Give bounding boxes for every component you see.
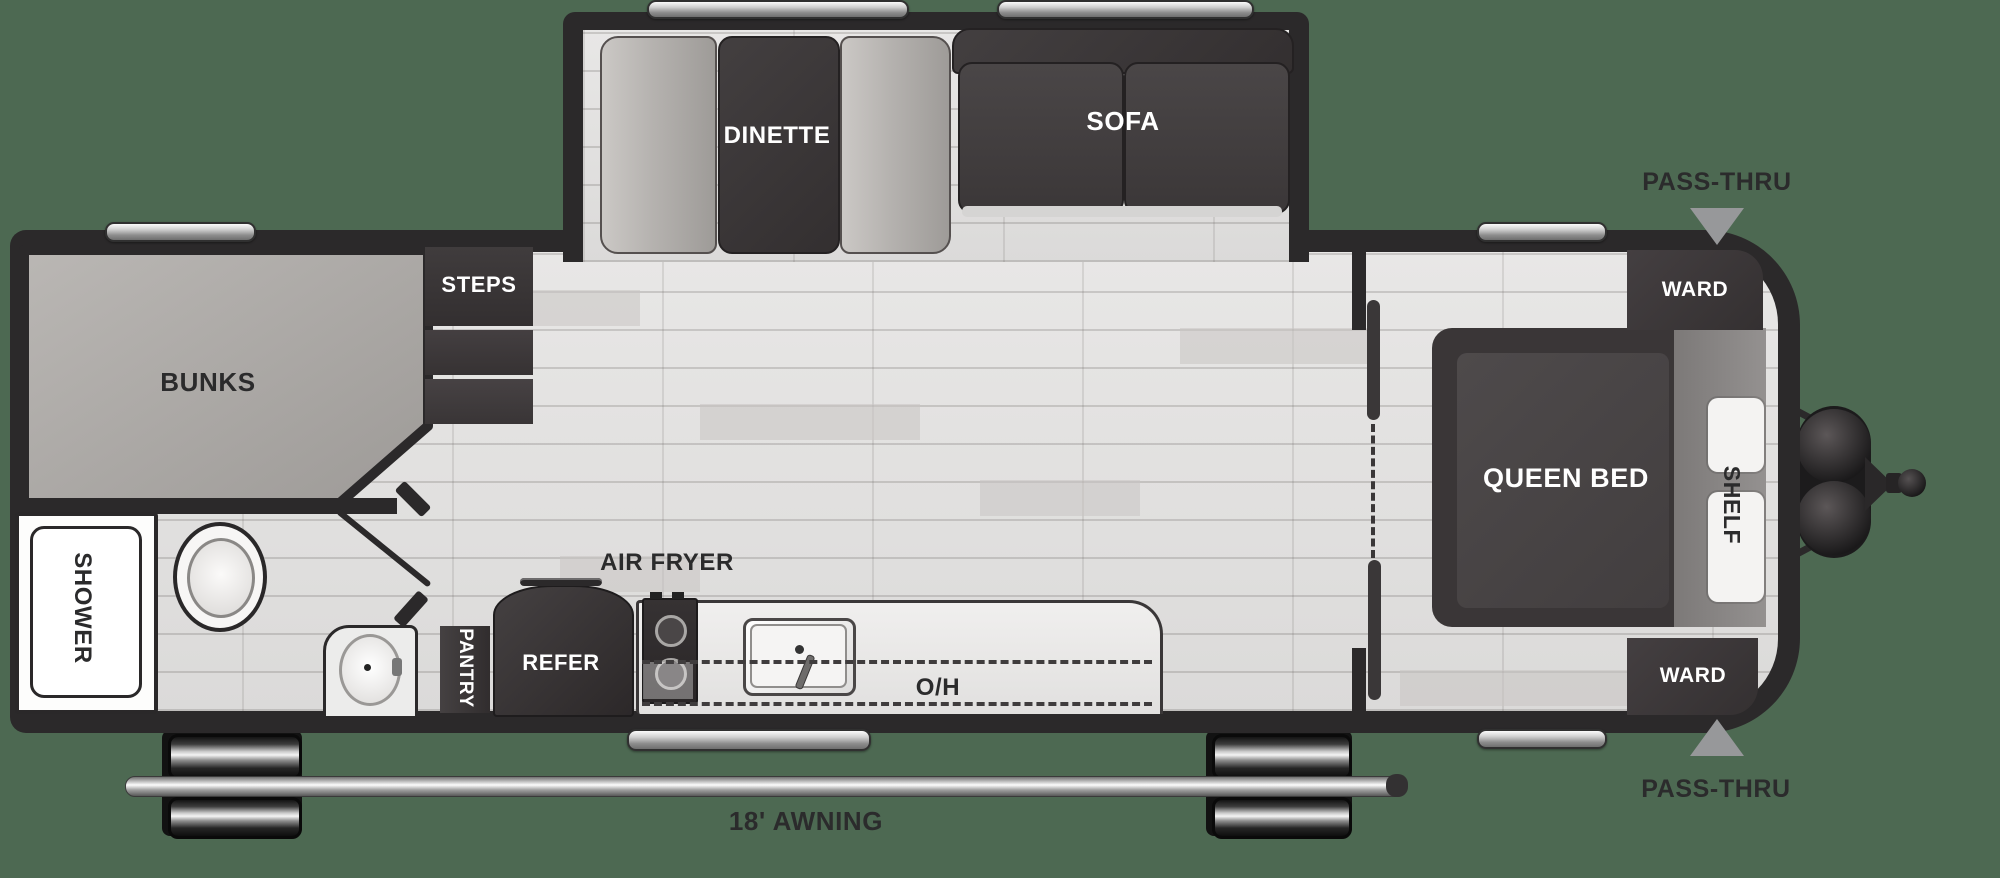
shower-label: SHOWER: [67, 508, 97, 708]
sofa-label: SOFA: [1043, 106, 1203, 136]
pass-thru-bottom-arrow-icon: [1690, 719, 1744, 756]
sofa-cushion: [1124, 62, 1290, 214]
burner-icon: [655, 615, 687, 647]
awning-label: 18' AWNING: [706, 806, 906, 836]
ward-top-label: WARD: [1635, 277, 1755, 303]
sofa-front-edge: [962, 206, 1282, 217]
toilet-bowl: [187, 538, 255, 618]
awning-rail-endcap: [1386, 774, 1408, 797]
ward-bottom-label: WARD: [1633, 663, 1753, 689]
sofa-cushion: [958, 62, 1124, 214]
refer-label: REFER: [501, 650, 621, 676]
tire-icon: [1212, 734, 1352, 780]
air-fryer-label: AIR FRYER: [577, 549, 757, 577]
partition-wall-bottom: [1352, 648, 1366, 711]
window-bedroom-top: [1477, 222, 1607, 242]
overhead-cabinet-dash: [642, 702, 1152, 706]
sliding-door-track-dash: [1371, 424, 1375, 558]
sliding-door-panel: [1368, 560, 1381, 700]
overhead-label: O/H: [878, 674, 998, 702]
tire-icon: [1212, 797, 1352, 839]
floor-plank-patch: [980, 480, 1140, 516]
propane-tank-icon: [1797, 409, 1871, 483]
pass-thru-top-label: PASS-THRU: [1627, 168, 1807, 196]
awning-rail: [125, 776, 1406, 797]
floor-plank-patch: [700, 404, 920, 440]
dinette-label: DINETTE: [697, 122, 857, 150]
kitchen-faucet-icon: [795, 645, 804, 654]
bath-faucet-icon: [392, 658, 402, 676]
entry-step-bar: [627, 729, 871, 751]
overhead-cabinet-dash: [642, 660, 1152, 664]
sliding-door-panel: [1367, 300, 1380, 420]
pass-thru-top-arrow-icon: [1690, 208, 1744, 245]
window-slideout-right: [997, 0, 1254, 19]
range-knob: [650, 592, 662, 599]
shelf-label: SHELF: [1719, 425, 1745, 585]
tire-icon: [168, 734, 302, 780]
hitch-ball-icon: [1898, 469, 1926, 497]
floorplan-canvas: DINETTE SOFA BUNKS STEPS SHOWER PANT: [0, 0, 2000, 878]
floor-plank-patch: [1180, 328, 1380, 364]
bunks-label: BUNKS: [128, 368, 288, 396]
queen-bed-label: QUEEN BED: [1466, 463, 1666, 493]
propane-tank-icon: [1797, 481, 1871, 555]
partition-wall-top: [1352, 252, 1366, 330]
pass-thru-bottom-label: PASS-THRU: [1626, 775, 1806, 803]
steps-label: STEPS: [429, 272, 529, 298]
range-knob: [672, 592, 684, 599]
refrigerator-handle: [520, 578, 602, 586]
window-bedroom-bottom: [1477, 729, 1607, 749]
tire-icon: [168, 797, 302, 839]
window-rear-top: [105, 222, 256, 242]
pantry-label: PANTRY: [452, 588, 478, 748]
window-slideout-left: [647, 0, 909, 19]
floor-plank-patch: [1400, 670, 1660, 706]
range-lower-overlay: [643, 662, 693, 699]
bath-sink-drain: [364, 664, 371, 671]
